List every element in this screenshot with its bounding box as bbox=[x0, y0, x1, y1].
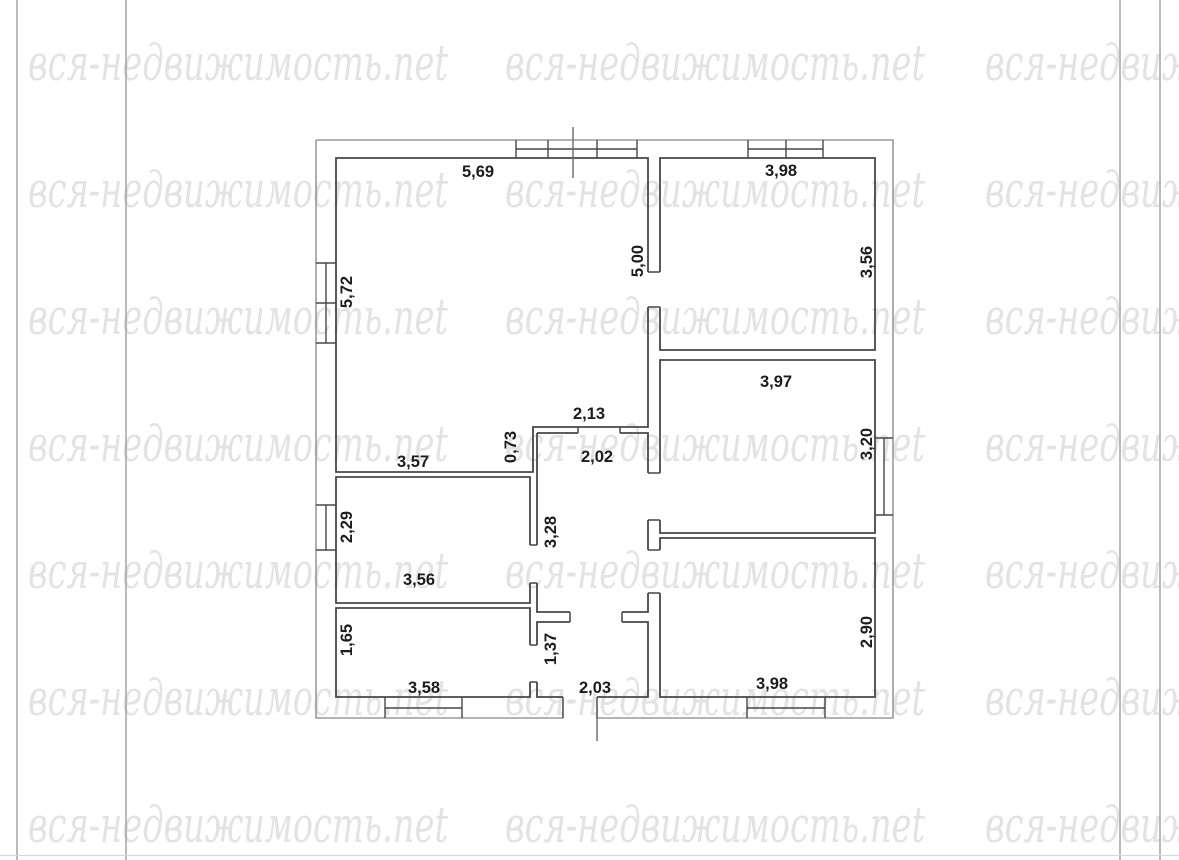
watermark-text: вся-недвижимость.net bbox=[505, 288, 926, 346]
watermark-text: вся-недвижимость.net bbox=[505, 161, 926, 219]
watermark-text: вся-недвижимость.net bbox=[28, 542, 449, 600]
watermark-text: вся-недвижимость.net bbox=[505, 542, 926, 600]
dimension-label: 2,03 bbox=[579, 679, 611, 697]
watermark-text: вся-недвижимость.net bbox=[28, 796, 449, 854]
watermark-text: вся-недвижимость.net bbox=[985, 288, 1179, 346]
dimension-label: 3,20 bbox=[858, 428, 876, 460]
dimension-label: 3,57 bbox=[397, 453, 429, 471]
watermark-text: вся-недвижимость.net bbox=[505, 796, 926, 854]
dimension-label: 3,98 bbox=[765, 162, 797, 180]
dimension-label: 0,73 bbox=[502, 431, 520, 463]
dimension-label: 3,56 bbox=[403, 571, 435, 589]
dimension-label: 1,37 bbox=[542, 633, 560, 665]
watermark-text: вся-недвижимость.net bbox=[985, 34, 1179, 92]
dimension-label: 2,13 bbox=[573, 405, 605, 423]
dimension-label: 5,00 bbox=[629, 245, 647, 277]
watermark-text: вся-недвижимость.net bbox=[985, 796, 1179, 854]
watermark-text: вся-недвижимость.net bbox=[985, 415, 1179, 473]
dimension-label: 3,28 bbox=[542, 516, 560, 548]
dimension-label: 3,56 bbox=[858, 246, 876, 278]
dimension-label: 1,65 bbox=[338, 624, 356, 656]
floor-plan-canvas: вся-недвижимость.net вся-недвижимость.ne… bbox=[0, 0, 1179, 860]
window-living-top bbox=[516, 140, 637, 158]
floor-plan-page: вся-недвижимость.net вся-недвижимость.ne… bbox=[0, 0, 1179, 860]
watermark-text: вся-недвижимость.net bbox=[985, 161, 1179, 219]
watermark-layer: вся-недвижимость.net вся-недвижимость.ne… bbox=[28, 34, 1179, 854]
watermark-text: вся-недвижимость.net bbox=[505, 34, 926, 92]
watermark-text: вся-недвижимость.net bbox=[28, 415, 449, 473]
watermark-text: вся-недвижимость.net bbox=[985, 542, 1179, 600]
dimension-label: 2,02 bbox=[581, 448, 613, 466]
watermark-text: вся-недвижимость.net bbox=[28, 34, 449, 92]
dimension-label: 3,97 bbox=[760, 373, 792, 391]
dimension-label: 2,29 bbox=[338, 511, 356, 543]
dimension-label: 3,98 bbox=[756, 675, 788, 693]
watermark-text: вся-недвижимость.net bbox=[28, 161, 449, 219]
dimension-label: 3,58 bbox=[408, 679, 440, 697]
dimension-label: 5,69 bbox=[462, 163, 494, 181]
dimension-label: 2,90 bbox=[858, 616, 876, 648]
watermark-text: вся-недвижимость.net bbox=[28, 288, 449, 346]
window-bedroom1-top bbox=[748, 140, 823, 158]
watermark-text: вся-недвижимость.net bbox=[985, 669, 1179, 727]
dimension-label: 5,72 bbox=[338, 276, 356, 308]
